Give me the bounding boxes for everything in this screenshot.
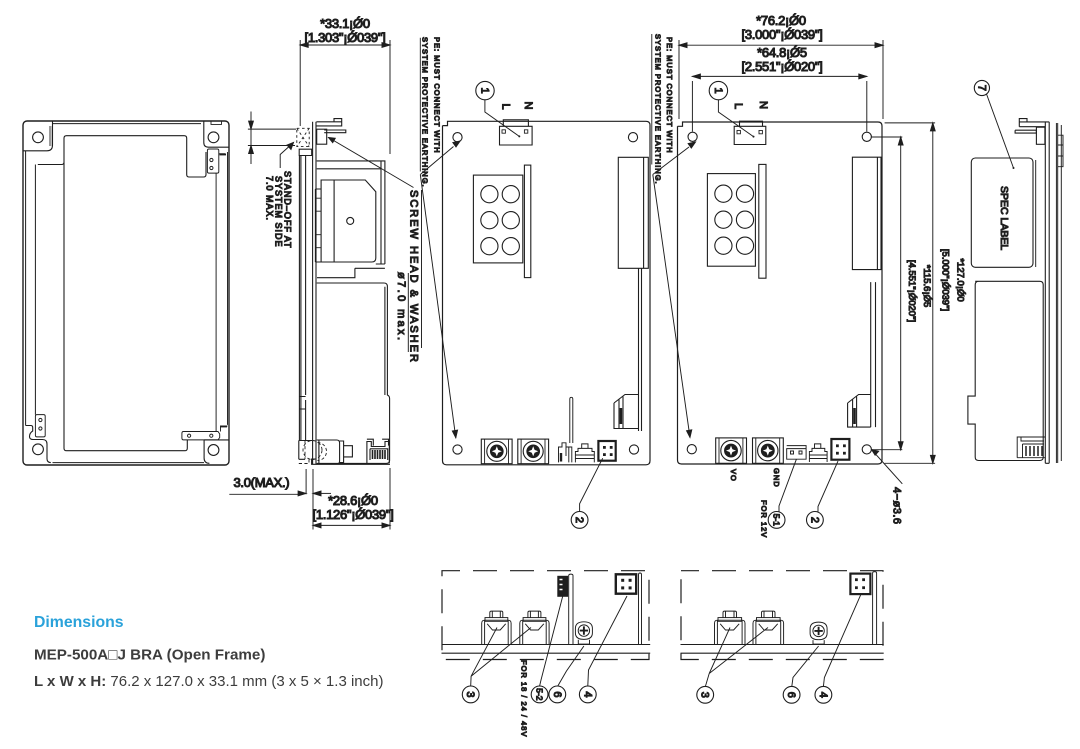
svg-text:[4.551"¡Ǿ020"]: [4.551"¡Ǿ020"]	[906, 260, 917, 322]
svg-text:6: 6	[785, 692, 797, 698]
svg-text:2: 2	[808, 517, 820, 523]
svg-text:7.0 MAX.: 7.0 MAX.	[265, 176, 275, 221]
svg-text:L: L	[732, 103, 744, 109]
svg-text:MEP-500A□J BRA (Open Frame): MEP-500A□J BRA (Open Frame)	[34, 647, 265, 664]
svg-text:GND: GND	[772, 468, 781, 488]
svg-text:5-2: 5-2	[535, 688, 545, 701]
svg-text:1: 1	[479, 88, 491, 94]
svg-text:3.0(MAX.): 3.0(MAX.)	[234, 475, 290, 490]
svg-text:Dimensions: Dimensions	[34, 614, 124, 631]
svg-text:*115.6¡Ǿ5: *115.6¡Ǿ5	[921, 265, 932, 308]
svg-text:3: 3	[699, 692, 711, 698]
svg-text:PE: MUST CONNECT WITH: PE: MUST CONNECT WITH	[665, 37, 674, 154]
svg-text:4: 4	[817, 692, 829, 698]
svg-text:L x W x H: 76.2 x 127.0 x 33.1: L x W x H: 76.2 x 127.0 x 33.1 mm (3 x 5…	[34, 673, 383, 690]
svg-text:[1.126"¡Ǿ039"]: [1.126"¡Ǿ039"]	[313, 507, 394, 522]
svg-text:*127.0¡Ǿ0: *127.0¡Ǿ0	[955, 258, 966, 301]
svg-text:5-1: 5-1	[772, 514, 782, 527]
svg-text:*33.1¡Ǿ0: *33.1¡Ǿ0	[320, 16, 370, 31]
svg-text:2: 2	[573, 517, 585, 523]
svg-text:[2.551"¡Ǿ020"]: [2.551"¡Ǿ020"]	[742, 59, 823, 74]
svg-text:FOR 18 / 24 / 48V: FOR 18 / 24 / 48V	[520, 660, 529, 737]
svg-text:6: 6	[551, 691, 563, 697]
svg-text:1: 1	[712, 88, 724, 94]
svg-text:SPEC LABEL: SPEC LABEL	[998, 186, 1010, 250]
svg-text:ø7.0 max.: ø7.0 max.	[395, 272, 407, 343]
svg-text:*64.8¡Ǿ5: *64.8¡Ǿ5	[757, 45, 807, 60]
svg-text:[3.000"¡Ǿ039"]: [3.000"¡Ǿ039"]	[742, 27, 823, 42]
svg-text:N: N	[757, 101, 769, 109]
svg-text:*76.2¡Ǿ0: *76.2¡Ǿ0	[756, 13, 806, 28]
svg-text:[5.000"¡Ǿ039"]: [5.000"¡Ǿ039"]	[940, 249, 951, 311]
svg-text:SYSTEM PROTECTIVE EARTHING.: SYSTEM PROTECTIVE EARTHING.	[421, 37, 430, 188]
svg-text:SYSTEM PROTECTIVE EARTHING.: SYSTEM PROTECTIVE EARTHING.	[654, 34, 663, 185]
svg-text:[1.303"¡Ǿ039"]: [1.303"¡Ǿ039"]	[305, 30, 386, 45]
svg-text:N: N	[522, 102, 534, 110]
svg-text:3: 3	[464, 691, 476, 697]
svg-text:FOR 12V: FOR 12V	[760, 500, 769, 538]
svg-text:L: L	[500, 104, 512, 110]
svg-text:SCREW HEAD & WASHER: SCREW HEAD & WASHER	[408, 190, 420, 364]
svg-text:PE: MUST CONNECT WITH: PE: MUST CONNECT WITH	[433, 37, 442, 154]
svg-text:4: 4	[581, 691, 593, 697]
svg-text:7: 7	[975, 85, 987, 91]
svg-text:*28.6¡Ǿ0: *28.6¡Ǿ0	[328, 493, 378, 508]
svg-text:VO: VO	[729, 469, 738, 482]
svg-text:4−ø3.6: 4−ø3.6	[891, 487, 903, 525]
